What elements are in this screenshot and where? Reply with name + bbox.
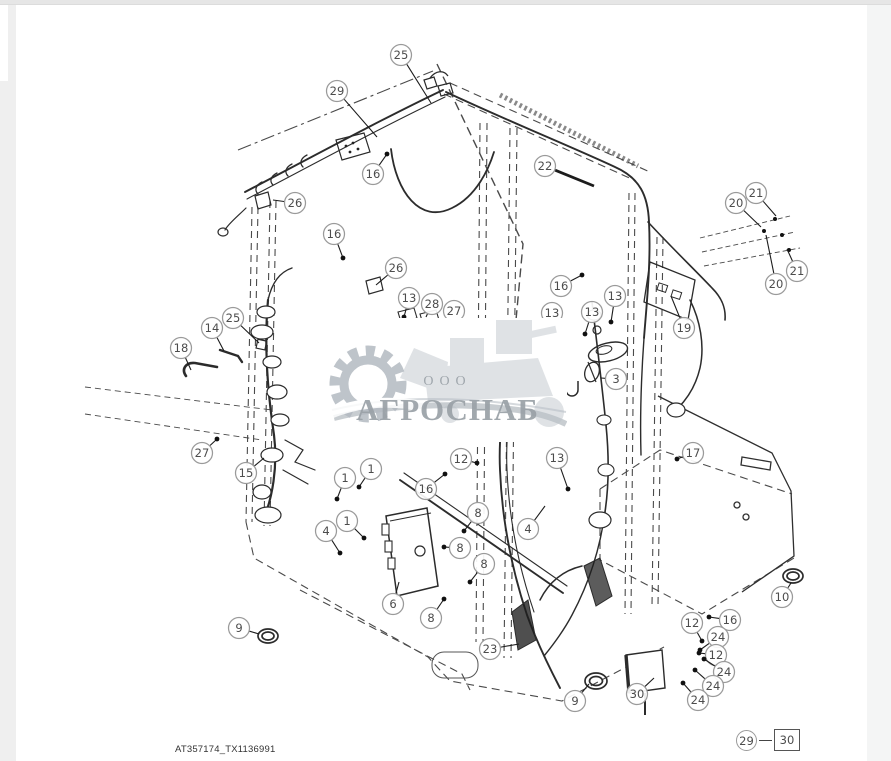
svg-text:4: 4 xyxy=(524,522,531,536)
fastener-dot xyxy=(357,485,362,490)
callout-21: 21 xyxy=(787,249,808,282)
svg-text:10: 10 xyxy=(775,590,790,604)
svg-text:28: 28 xyxy=(425,297,440,311)
callout-16: 16 xyxy=(707,610,741,631)
svg-text:4: 4 xyxy=(322,524,329,538)
fastener-dot xyxy=(681,681,686,686)
fastener-dot xyxy=(335,497,340,502)
fastener-dot xyxy=(338,551,343,556)
svg-text:26: 26 xyxy=(389,261,404,275)
fastener-dot xyxy=(443,472,448,477)
svg-text:6: 6 xyxy=(389,597,396,611)
svg-text:8: 8 xyxy=(427,611,434,625)
callout-10: 10 xyxy=(772,583,793,608)
legend-ref-box: 30 xyxy=(774,729,800,751)
svg-text:16: 16 xyxy=(554,279,569,293)
callout-27: 27 xyxy=(192,437,220,464)
svg-text:1: 1 xyxy=(341,471,348,485)
figure-caption: AT357174_TX1136991 xyxy=(175,744,275,755)
fastener-dot xyxy=(215,437,220,442)
callout-21: 21 xyxy=(746,183,777,217)
callout-12: 12 xyxy=(451,449,480,470)
svg-text:3: 3 xyxy=(612,372,619,386)
svg-text:27: 27 xyxy=(195,446,210,460)
callout-9: 9 xyxy=(229,618,260,639)
callout-14: 14 xyxy=(202,318,225,352)
svg-text:16: 16 xyxy=(366,167,381,181)
svg-text:29: 29 xyxy=(330,84,345,98)
callout-1: 1 xyxy=(357,459,382,490)
svg-text:13: 13 xyxy=(608,289,623,303)
svg-text:8: 8 xyxy=(474,506,481,520)
svg-text:8: 8 xyxy=(456,541,463,555)
fastener-dot xyxy=(468,580,473,585)
svg-text:16: 16 xyxy=(723,613,738,627)
fastener-dot xyxy=(702,657,707,662)
svg-text:12: 12 xyxy=(454,452,469,466)
callout-12: 12 xyxy=(682,613,705,644)
callout-13: 13 xyxy=(582,302,603,337)
callout-25: 25 xyxy=(223,308,260,344)
svg-text:17: 17 xyxy=(686,446,701,460)
callout-1: 1 xyxy=(337,511,367,541)
svg-text:25: 25 xyxy=(226,311,241,325)
legend-item-balloon: 29 xyxy=(736,730,757,751)
callout-18: 18 xyxy=(171,338,192,371)
svg-text:26: 26 xyxy=(288,196,303,210)
fastener-dot xyxy=(580,273,585,278)
fastener-dot xyxy=(675,457,680,462)
page: 2529162616262220212120191328271613131331… xyxy=(0,0,891,761)
svg-text:30: 30 xyxy=(630,687,645,701)
svg-text:20: 20 xyxy=(729,196,744,210)
callout-13: 13 xyxy=(547,448,571,492)
svg-text:16: 16 xyxy=(419,482,434,496)
callout-8: 8 xyxy=(421,597,447,629)
fastener-dot xyxy=(462,529,467,534)
svg-text:8: 8 xyxy=(480,557,487,571)
callout-16: 16 xyxy=(416,472,448,500)
fastener-dot xyxy=(475,461,480,466)
callout-22: 22 xyxy=(535,156,595,187)
svg-text:18: 18 xyxy=(174,341,189,355)
fastener-dot xyxy=(609,320,614,325)
svg-text:12: 12 xyxy=(709,648,724,662)
legend: 29 30 xyxy=(736,729,800,751)
callout-26: 26 xyxy=(376,258,407,286)
fastener-dot xyxy=(700,639,705,644)
callout-23: 23 xyxy=(480,639,520,660)
svg-text:24: 24 xyxy=(691,693,706,707)
fastener-dot xyxy=(566,487,571,492)
svg-text:21: 21 xyxy=(790,264,805,278)
callout-9: 9 xyxy=(565,684,590,712)
svg-text:20: 20 xyxy=(769,277,784,291)
callout-3: 3 xyxy=(601,369,627,390)
fastener-dot xyxy=(362,536,367,541)
watermark-company-name: АГРОСНАБ xyxy=(328,392,567,428)
svg-text:1: 1 xyxy=(367,462,374,476)
svg-text:25: 25 xyxy=(394,48,409,62)
svg-text:21: 21 xyxy=(749,186,764,200)
callout-20: 20 xyxy=(766,235,787,295)
svg-text:9: 9 xyxy=(235,621,242,635)
callout-8: 8 xyxy=(442,538,471,559)
svg-text:13: 13 xyxy=(550,451,565,465)
callout-16: 16 xyxy=(363,152,390,185)
svg-text:19: 19 xyxy=(677,321,692,335)
svg-text:12: 12 xyxy=(685,616,700,630)
callout-26: 26 xyxy=(273,193,306,214)
svg-text:22: 22 xyxy=(538,159,553,173)
callout-15: 15 xyxy=(236,458,265,484)
callout-4: 4 xyxy=(518,506,546,540)
fastener-dot xyxy=(583,332,588,337)
callout-29: 29 xyxy=(327,81,378,138)
fastener-dot xyxy=(693,668,698,673)
legend-connector-line xyxy=(759,740,772,741)
svg-text:27: 27 xyxy=(447,304,462,318)
svg-text:13: 13 xyxy=(585,305,600,319)
svg-text:23: 23 xyxy=(483,642,498,656)
callout-17: 17 xyxy=(675,443,704,464)
svg-text:24: 24 xyxy=(706,679,721,693)
callout-16: 16 xyxy=(324,224,346,261)
svg-text:1: 1 xyxy=(343,514,350,528)
svg-text:16: 16 xyxy=(327,227,342,241)
fastener-dot xyxy=(697,651,702,656)
callout-16: 16 xyxy=(551,273,585,297)
fastener-dot xyxy=(385,152,390,157)
svg-text:9: 9 xyxy=(571,694,578,708)
watermark: ООО АГРОСНАБ xyxy=(328,318,567,442)
svg-text:24: 24 xyxy=(711,630,726,644)
svg-text:13: 13 xyxy=(402,291,417,305)
fastener-dot xyxy=(707,615,712,620)
callout-1: 1 xyxy=(335,468,356,502)
watermark-ooo: ООО xyxy=(328,374,567,390)
callout-13: 13 xyxy=(605,286,626,325)
callout-28: 28 xyxy=(422,294,443,318)
svg-text:14: 14 xyxy=(205,321,220,335)
fastener-dot xyxy=(341,256,346,261)
fastener-dot xyxy=(442,597,447,602)
svg-text:15: 15 xyxy=(239,466,254,480)
callout-8: 8 xyxy=(468,554,495,585)
fastener-dot xyxy=(442,545,447,550)
conduit xyxy=(500,95,638,166)
